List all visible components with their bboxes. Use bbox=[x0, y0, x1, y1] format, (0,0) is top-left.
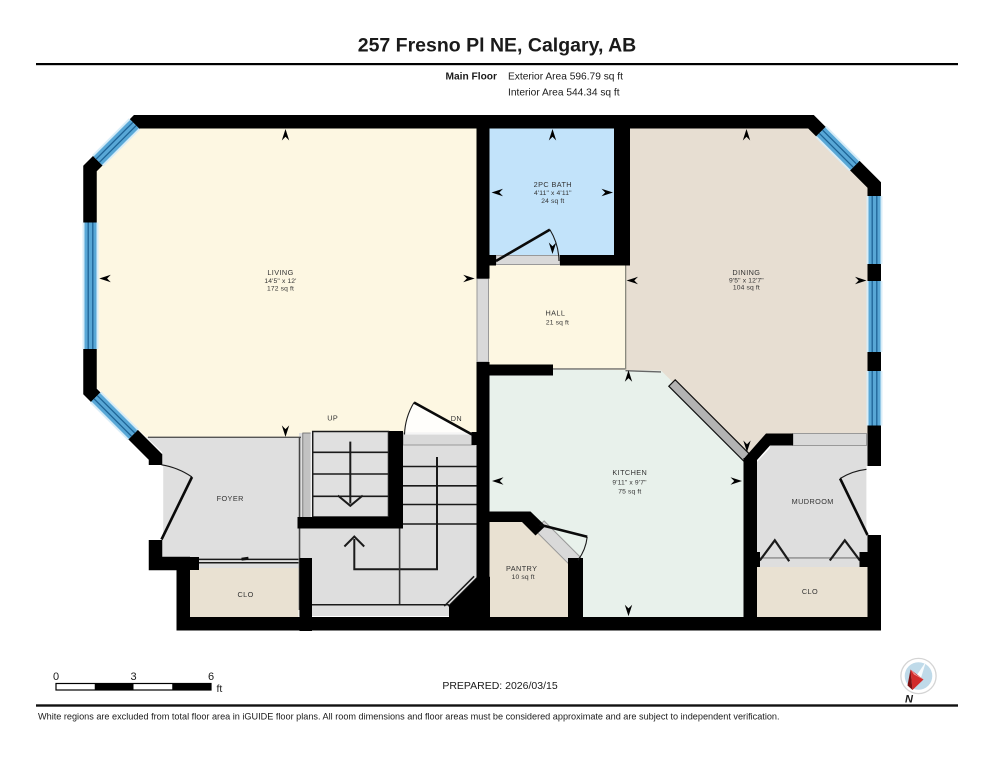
svg-text:DINING: DINING bbox=[732, 268, 760, 277]
svg-text:LIVING: LIVING bbox=[267, 268, 293, 277]
svg-text:ft: ft bbox=[217, 683, 223, 695]
svg-text:9'11" x 9'7": 9'11" x 9'7" bbox=[612, 479, 647, 486]
svg-text:24 sq ft: 24 sq ft bbox=[541, 198, 564, 205]
svg-text:172 sq ft: 172 sq ft bbox=[267, 285, 294, 292]
svg-text:6: 6 bbox=[208, 671, 214, 683]
svg-text:257 Fresno Pl NE, Calgary, AB: 257 Fresno Pl NE, Calgary, AB bbox=[358, 35, 637, 57]
svg-text:PANTRY: PANTRY bbox=[506, 564, 537, 573]
svg-text:4'11" x 4'11": 4'11" x 4'11" bbox=[534, 190, 572, 197]
svg-text:2PC BATH: 2PC BATH bbox=[534, 180, 572, 189]
svg-text:Interior Area 544.34 sq ft: Interior Area 544.34 sq ft bbox=[508, 87, 620, 98]
svg-text:CLO: CLO bbox=[802, 587, 818, 596]
svg-text:10 sq ft: 10 sq ft bbox=[512, 574, 535, 581]
svg-text:0: 0 bbox=[53, 671, 59, 683]
svg-text:White regions are excluded fro: White regions are excluded from total fl… bbox=[38, 712, 780, 722]
svg-text:CLO: CLO bbox=[237, 590, 253, 599]
svg-text:Main Floor: Main Floor bbox=[446, 71, 498, 82]
svg-text:104 sq ft: 104 sq ft bbox=[733, 285, 760, 292]
svg-text:DN: DN bbox=[451, 414, 462, 423]
svg-text:3: 3 bbox=[130, 671, 136, 683]
svg-text:FOYER: FOYER bbox=[217, 494, 244, 503]
svg-text:MUDROOM: MUDROOM bbox=[792, 497, 834, 506]
svg-text:PREPARED: 2026/03/15: PREPARED: 2026/03/15 bbox=[442, 680, 558, 692]
svg-text:14'5" x 12': 14'5" x 12' bbox=[264, 278, 296, 285]
svg-text:N: N bbox=[905, 694, 914, 706]
svg-text:HALL: HALL bbox=[545, 309, 565, 318]
svg-text:UP: UP bbox=[327, 414, 338, 423]
svg-text:KITCHEN: KITCHEN bbox=[612, 468, 647, 477]
svg-text:9'5" x 12'7": 9'5" x 12'7" bbox=[729, 277, 764, 284]
svg-text:75 sq ft: 75 sq ft bbox=[618, 488, 641, 495]
svg-text:21 sq ft: 21 sq ft bbox=[546, 319, 569, 326]
svg-text:Exterior Area 596.79 sq ft: Exterior Area 596.79 sq ft bbox=[508, 71, 623, 82]
